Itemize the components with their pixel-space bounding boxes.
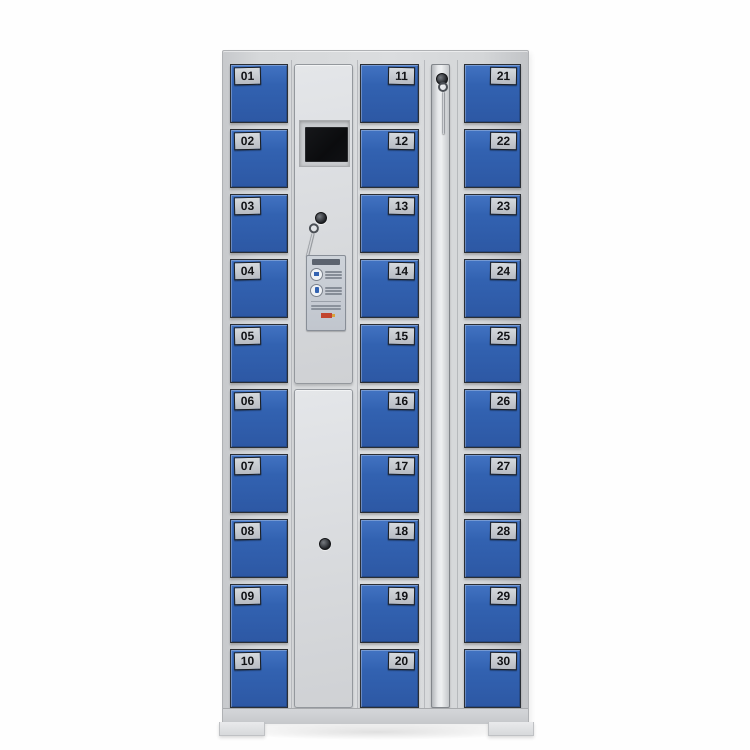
door-11: 11 [360,64,419,123]
key-shaft [305,233,314,257]
door-22: 22 [464,129,521,188]
door-16: 16 [360,389,419,448]
door-number-label: 12 [388,132,415,150]
door-number-label: 28 [490,522,517,540]
key-ring [438,82,448,92]
control-panel-door [294,64,353,384]
locking-bar [431,64,450,708]
door-number-label: 26 [490,392,517,410]
cabinet-foot-right [488,722,534,736]
door-18: 18 [360,519,419,578]
door-27: 27 [464,454,521,513]
instruction-step [310,268,342,281]
door-number-label: 10 [234,652,261,671]
door-10: 10 [230,649,288,708]
door-20: 20 [360,649,419,708]
instruction-step [310,284,342,297]
door-05: 05 [230,324,288,383]
door-30: 30 [464,649,521,708]
door-number-label: 27 [490,457,517,475]
screen-bezel [299,120,350,167]
door-column-right: 21 22 23 24 25 26 27 28 29 30 [464,51,521,723]
door-26: 26 [464,389,521,448]
door-number-label: 13 [388,197,415,215]
door-28: 28 [464,519,521,578]
instruction-text-lines [325,270,342,280]
door-number-label: 01 [234,67,261,86]
door-number-label: 05 [234,327,261,346]
door-number-label: 19 [388,587,415,605]
door-15: 15 [360,324,419,383]
door-number-label: 17 [388,457,415,475]
door-24: 24 [464,259,521,318]
cabinet-base [223,708,528,724]
instruction-label [306,255,346,331]
card-icon [310,268,323,281]
door-19: 19 [360,584,419,643]
locker-cabinet: 01 02 03 04 05 06 07 08 09 10 [222,50,529,724]
display-screen [305,127,348,162]
red-stamp-icon [321,313,332,318]
door-number-label: 14 [388,262,415,280]
door-08: 08 [230,519,288,578]
door-number-label: 04 [234,262,261,281]
door-number-label: 18 [388,522,415,540]
door-number-label: 20 [388,652,415,670]
keyhole-lock-icon [319,538,331,550]
door-number-label: 02 [234,132,261,151]
door-25: 25 [464,324,521,383]
door-number-label: 03 [234,197,261,216]
hanging-key-icon [302,222,320,257]
door-14: 14 [360,259,419,318]
door-number-label: 22 [490,132,517,150]
service-door [294,389,353,708]
keyhole-lock-icon [315,212,327,224]
door-09: 09 [230,584,288,643]
door-number-label: 24 [490,262,517,280]
door-21: 21 [464,64,521,123]
door-01: 01 [230,64,288,123]
instruction-footer-lines [311,301,341,310]
door-number-label: 21 [490,67,517,85]
door-02: 02 [230,129,288,188]
door-column-left: 01 02 03 04 05 06 07 08 09 10 [230,51,288,723]
door-number-label: 11 [388,67,415,85]
ground-shadow [225,724,530,740]
door-29: 29 [464,584,521,643]
door-number-label: 16 [388,392,415,410]
door-number-label: 15 [388,327,415,345]
control-column [294,51,353,723]
instruction-text-lines [325,286,342,296]
instruction-title-bar [312,259,340,265]
door-23: 23 [464,194,521,253]
cabinet-foot-left [219,722,265,736]
locker-product-photo: 01 02 03 04 05 06 07 08 09 10 [0,0,750,750]
door-06: 06 [230,389,288,448]
door-13: 13 [360,194,419,253]
door-number-label: 08 [234,522,261,541]
door-number-label: 09 [234,587,261,606]
panel-seam [457,60,458,708]
door-04: 04 [230,259,288,318]
key-shaft [442,92,445,134]
door-number-label: 07 [234,457,261,476]
panel-seam [424,60,425,708]
door-number-label: 30 [490,652,517,670]
hanging-key-icon [438,82,448,134]
door-03: 03 [230,194,288,253]
door-number-label: 06 [234,392,261,411]
door-07: 07 [230,454,288,513]
phone-icon [310,284,323,297]
door-number-label: 29 [490,587,517,605]
door-number-label: 23 [490,197,517,215]
door-12: 12 [360,129,419,188]
panel-seam [357,60,358,708]
panel-seam [291,60,292,708]
door-column-middle: 11 12 13 14 15 16 17 18 19 20 [360,51,419,723]
door-number-label: 25 [490,327,517,345]
door-17: 17 [360,454,419,513]
